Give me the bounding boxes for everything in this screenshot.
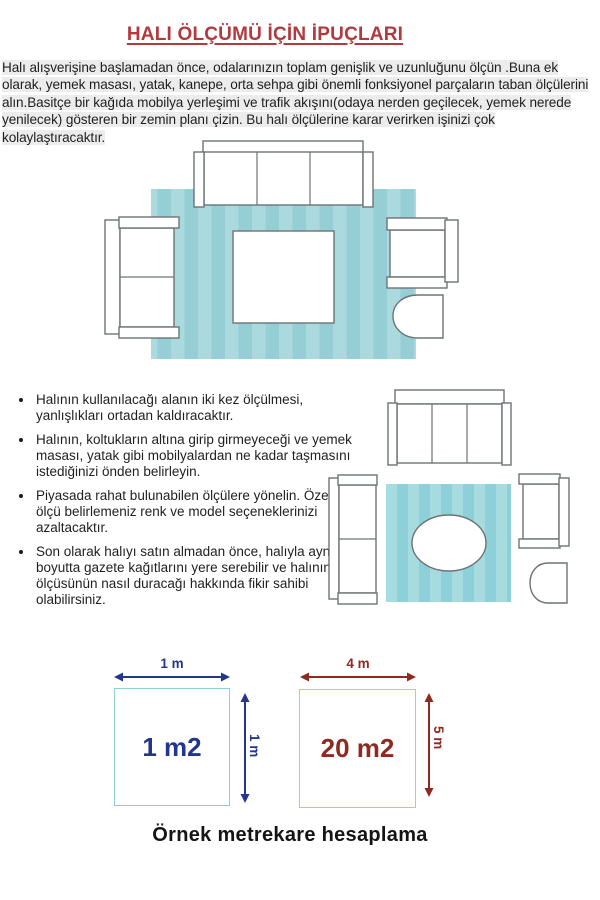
side-table <box>530 563 567 603</box>
coffee-table <box>233 231 334 323</box>
tip-item: Piyasada rahat bulunabilen ölçülere yöne… <box>34 488 358 536</box>
intro-paragraph: Halı alışverişine başlamadan önce, odala… <box>2 59 599 146</box>
oval-coffee-table <box>412 515 486 571</box>
three-seat-sofa <box>388 390 511 465</box>
armchair <box>387 218 458 288</box>
large-square-height-label: 5 m <box>431 726 446 749</box>
page-title: HALI ÖLÇÜMÜ İÇİN İPUÇLARI <box>0 24 530 46</box>
horizontal-arrow-icon <box>112 671 232 683</box>
small-square-area-label: 1 m2 <box>142 732 201 763</box>
horizontal-arrow-icon <box>298 671 418 683</box>
intro-text: Halı alışverişine başlamadan önce, odala… <box>2 60 588 145</box>
example-caption: Örnek metrekare hesaplama <box>0 824 580 847</box>
small-square-width-label: 1 m <box>112 656 232 671</box>
tip-item: Halının, koltukların altına girip girmey… <box>34 432 358 480</box>
three-seat-sofa <box>194 141 373 207</box>
tip-item: Son olarak halıyı satın almadan önce, ha… <box>34 544 358 608</box>
small-square-height-label: 1 m <box>247 734 262 757</box>
carpet-measurement-infographic: HALI ÖLÇÜMÜ İÇİN İPUÇLARI Halı alışveriş… <box>0 0 600 900</box>
armchair <box>519 474 569 548</box>
twenty-square-meter-box: 20 m2 <box>299 689 416 808</box>
loveseat-sofa <box>329 475 377 604</box>
one-square-meter-box: 1 m2 <box>114 688 230 806</box>
living-room-floor-plan-small <box>320 383 580 613</box>
large-square-area-label: 20 m2 <box>321 733 395 764</box>
tip-item: Halının kullanılacağı alanın iki kez ölç… <box>34 392 358 424</box>
living-room-floor-plan-large <box>90 136 470 368</box>
tips-list: Halının kullanılacağı alanın iki kez ölç… <box>14 392 358 616</box>
side-table <box>393 295 443 338</box>
loveseat-sofa <box>105 217 179 338</box>
large-square-width-label: 4 m <box>298 656 418 671</box>
